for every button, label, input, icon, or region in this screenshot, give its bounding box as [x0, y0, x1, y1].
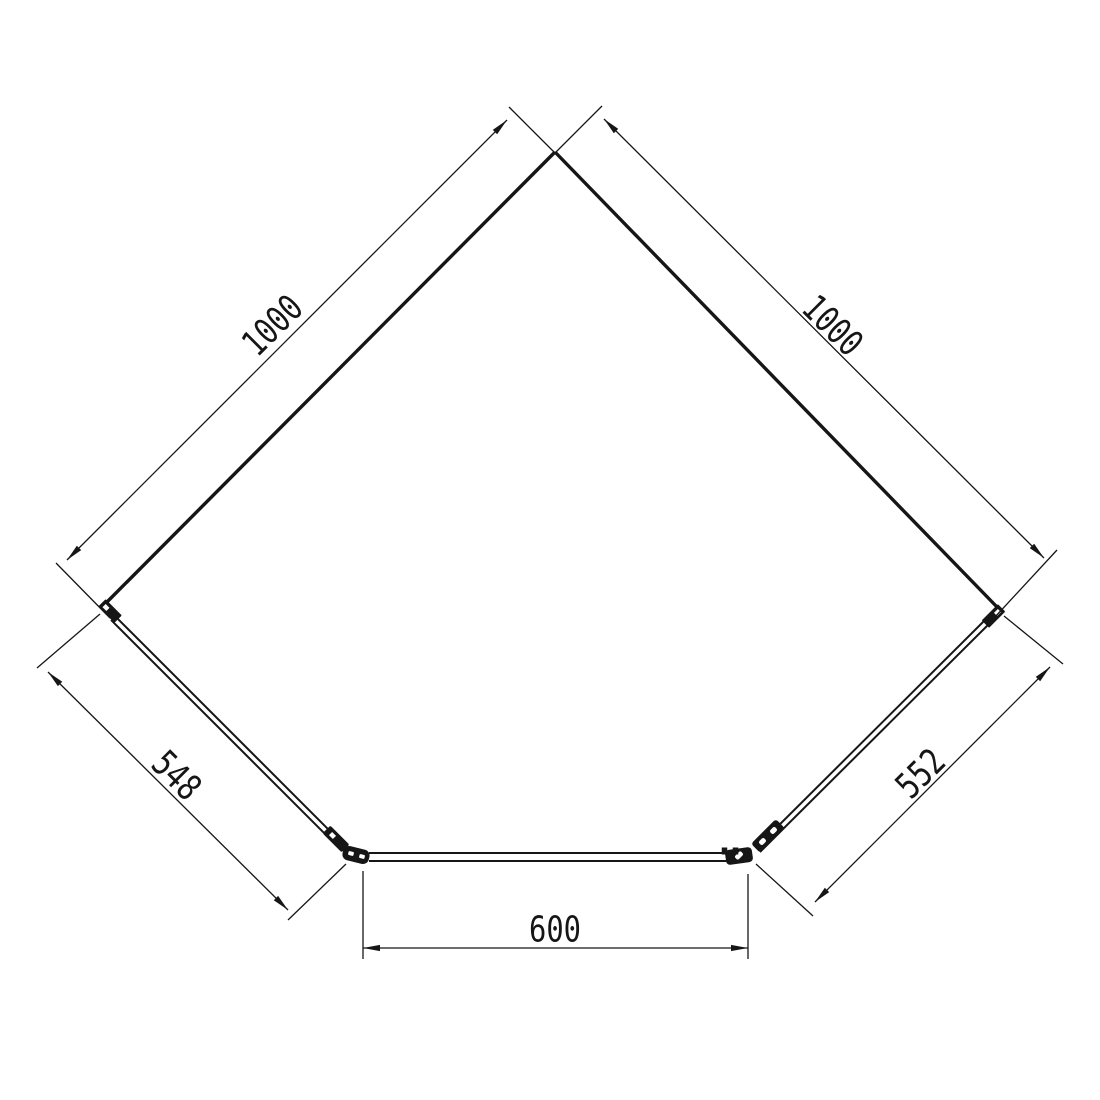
- dimension-label: 600: [529, 910, 581, 951]
- technical-drawing: 10001000548552600: [0, 0, 1100, 1100]
- right-door-stop-tick-1: [722, 848, 728, 855]
- right-door-stop-tick-2: [733, 848, 739, 855]
- drawing-page: 10001000548552600: [0, 0, 1100, 1100]
